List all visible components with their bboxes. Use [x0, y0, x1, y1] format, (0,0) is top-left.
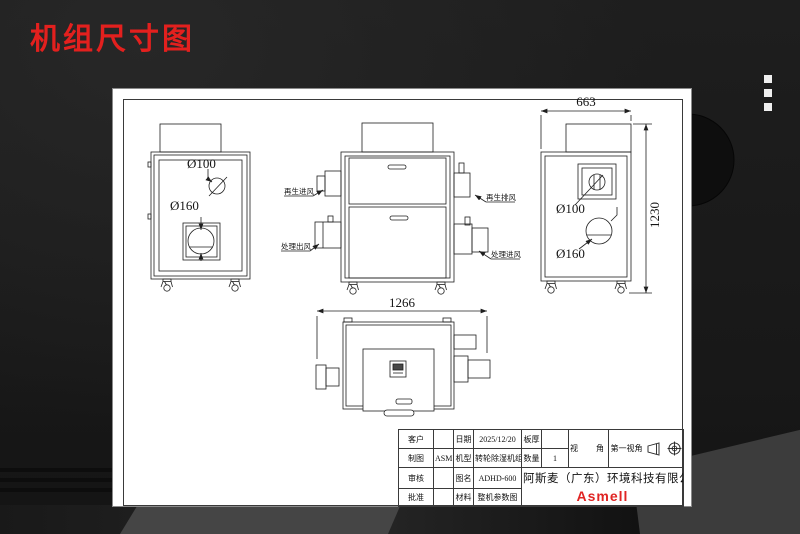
drawn-value: ASM: [434, 449, 454, 468]
date-value: 2025/12/20: [474, 430, 522, 449]
screenshot-stage: 机组尺寸图: [0, 0, 800, 534]
dot: [764, 75, 772, 83]
bg-stripe: [0, 468, 118, 472]
check-label: 审核: [399, 468, 434, 489]
dot: [764, 89, 772, 97]
company-logo: Asmell: [523, 488, 682, 504]
bg-stripe: [0, 478, 118, 482]
side-view-dia-100: Ø100: [556, 201, 585, 216]
bg-stripe: [0, 488, 118, 492]
plate-value: [542, 430, 569, 449]
title-block: 客户 日期 2025/12/20 板厚 视 角 第一视角: [398, 429, 683, 506]
top-view: 1266: [316, 295, 490, 416]
page-title: 机组尺寸图: [30, 14, 195, 58]
figname-value: ADHD-600: [474, 468, 522, 489]
view-angle-value: 第一视角: [611, 443, 643, 454]
side-view-dia-160: Ø160: [556, 246, 585, 261]
dot: [764, 103, 772, 111]
vertical-dots-icon[interactable]: [764, 75, 772, 111]
drawn-label: 制图: [399, 449, 434, 468]
front-view: 再生进风 处理出风 再生排风 处理进风: [281, 123, 521, 294]
check-value: [434, 468, 454, 489]
figname-label: 图名: [454, 468, 474, 489]
qty-value: 1: [542, 449, 569, 468]
plate-label: 板厚: [522, 430, 542, 449]
dim-663: 663: [576, 94, 596, 109]
label-regen-exhaust: 再生排风: [486, 192, 516, 202]
date-label: 日期: [454, 430, 474, 449]
material-value: 整机参数图: [474, 489, 522, 507]
model-value: 转轮除湿机组: [474, 449, 522, 468]
qty-label: 数量: [522, 449, 542, 468]
label-regen-inlet: 再生进风: [284, 186, 314, 196]
dim-1266: 1266: [389, 295, 416, 310]
drawing-sheet: Ø100 Ø160: [112, 88, 692, 507]
side-view: 663 1230 Ø100 Ø160: [541, 94, 662, 293]
label-process-inlet: 处理进风: [491, 249, 521, 259]
dim-1230: 1230: [647, 202, 662, 228]
company-name: 阿斯麦（广东）环境科技有限公司: [523, 470, 682, 486]
model-label: 机型: [454, 449, 474, 468]
left-view-dia-100: Ø100: [187, 156, 216, 171]
approve-label: 批准: [399, 489, 434, 507]
label-process-outlet: 处理出风: [281, 241, 311, 251]
customer-label: 客户: [399, 430, 434, 449]
material-label: 材料: [454, 489, 474, 507]
crosshair-circle-icon: [667, 441, 682, 456]
view-angle-label: 视 角: [569, 430, 609, 468]
cone-side-icon: [647, 442, 663, 456]
left-view-dia-160: Ø160: [170, 198, 199, 213]
approve-value: [434, 489, 454, 507]
left-view: Ø100 Ø160: [148, 124, 250, 291]
customer-value: [434, 430, 454, 449]
